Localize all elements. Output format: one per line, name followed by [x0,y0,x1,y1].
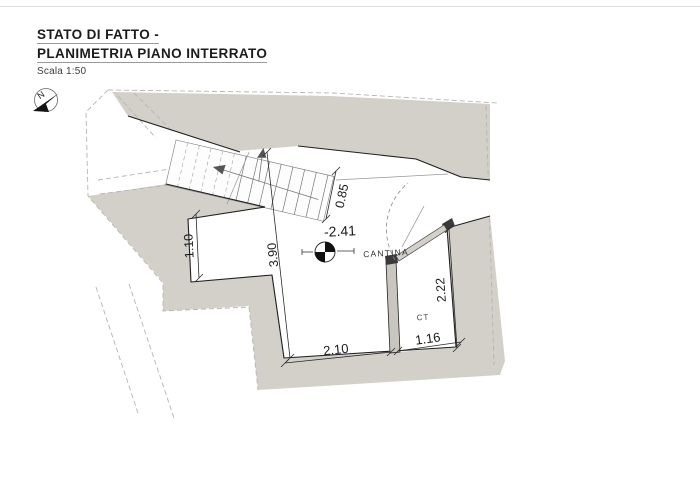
dimension-room-length: 3.90 [265,242,281,268]
dimension-alcove-depth: 1.10 [181,233,196,258]
dashed-projection-left-1 [96,287,139,416]
dimension-ct-length: 2.22 [433,277,449,302]
dimension-room-width: 2.10 [322,341,349,359]
floor-plan-canvas: 0.85 1.10 3.90 2.22 2.10 1.16 -2.41 CANT… [0,0,700,498]
level-annotation: -2.41 [324,222,357,240]
north-indicator: N [33,89,59,113]
dashed-corridor-line-1 [98,169,170,180]
room-label-ct: CT [416,313,429,323]
